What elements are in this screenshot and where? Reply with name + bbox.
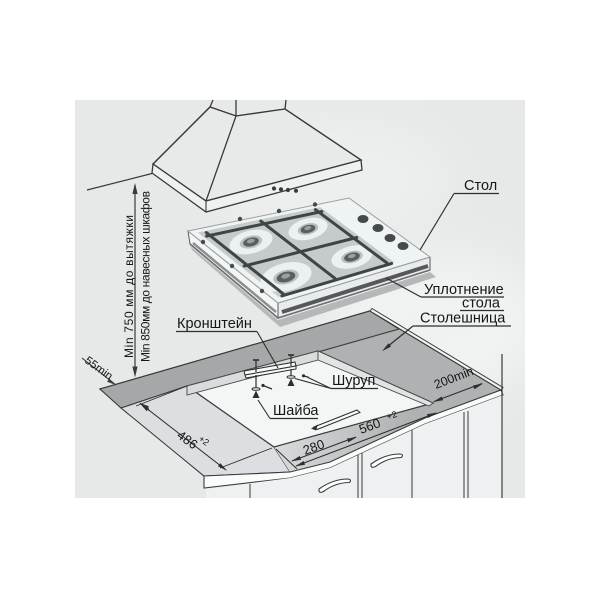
- svg-text:Min 750 мм до вытяжки: Min 750 мм до вытяжки: [122, 215, 136, 358]
- svg-text:Min 850мм до навесных шкафов: Min 850мм до навесных шкафов: [139, 191, 153, 362]
- svg-text:Стол: Стол: [464, 178, 497, 194]
- svg-text:Шуруп: Шуруп: [332, 373, 375, 389]
- svg-text:Шайба: Шайба: [273, 403, 319, 419]
- svg-text:Столешница: Столешница: [420, 311, 506, 327]
- svg-text:Кронштейн: Кронштейн: [177, 316, 252, 332]
- svg-text:стола: стола: [462, 296, 501, 312]
